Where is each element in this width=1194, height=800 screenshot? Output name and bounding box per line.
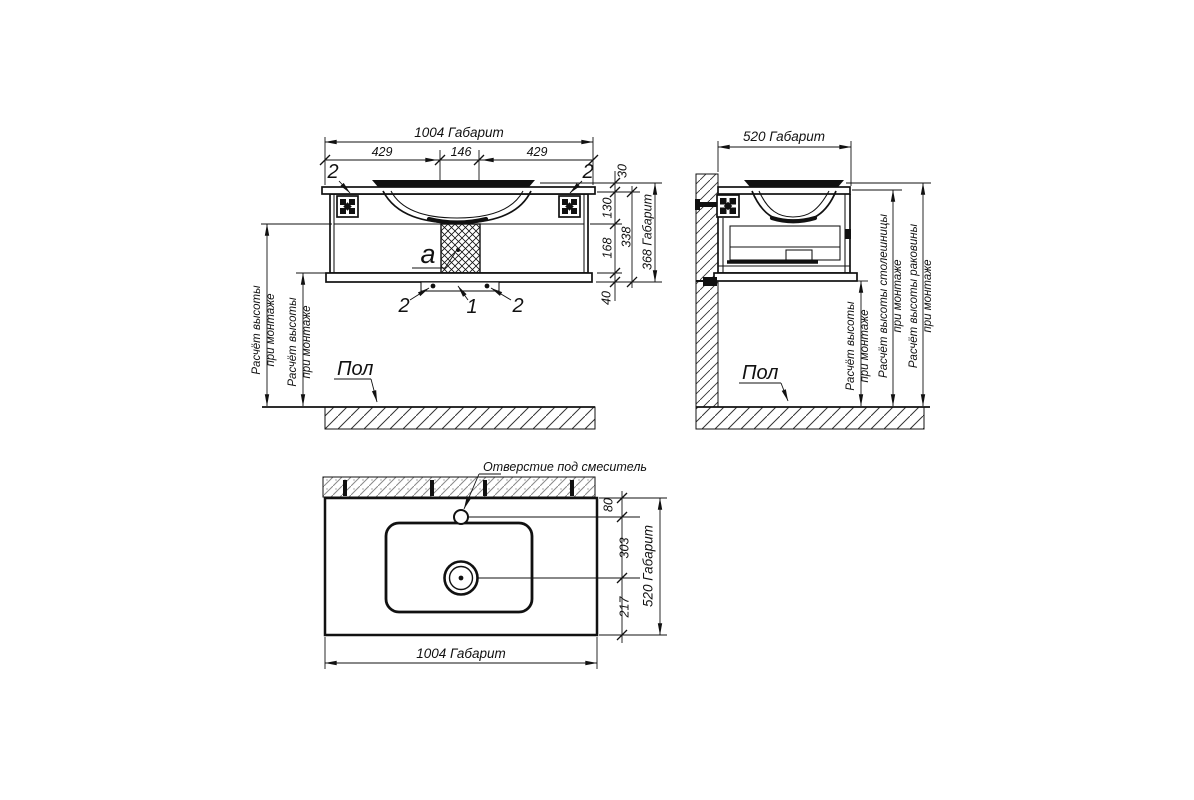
callout-foot-right: 2 xyxy=(511,295,523,317)
front-countertop xyxy=(322,187,595,194)
side-countertop xyxy=(718,187,850,194)
wall-anchor-tick xyxy=(343,480,347,496)
front-dim-width-total-label: 1004 Габарит xyxy=(414,125,504,140)
side-height-note-line1: Расчёт высоты xyxy=(845,301,857,391)
front-height-note2-line2: при монтаже xyxy=(301,305,313,378)
front-height-note1-line2: при монтаже xyxy=(265,293,277,366)
side-floor-label: Пол xyxy=(742,362,778,384)
drawer-box xyxy=(730,226,840,260)
lower-bracket xyxy=(703,277,717,286)
bolt-head xyxy=(695,199,700,210)
top-dim-303: 303 xyxy=(617,538,631,559)
side-dim-depth-total: 520 Габарит xyxy=(718,129,851,186)
top-dim-width-bottom: 1004 Габарит xyxy=(325,637,597,669)
front-dim-168: 168 xyxy=(600,238,614,259)
front-dim-left-label: 429 xyxy=(372,145,393,159)
front-dim-height-total: 368 Габарит xyxy=(640,194,654,270)
side-view: 520 Габарит xyxy=(695,129,934,429)
vanity-technical-drawing: 1004 Габарит 429 146 429 a xyxy=(0,0,1194,800)
basin-rim xyxy=(372,180,535,187)
side-basin-note-line1: Расчёт высоты раковины xyxy=(908,223,920,368)
callout-bracket-top-left: 2 xyxy=(326,161,338,183)
wall-anchor-tick xyxy=(430,480,434,496)
side-floor: Пол xyxy=(696,362,930,429)
side-bottom-panel xyxy=(696,273,857,286)
front-height-note2-line1: Расчёт высоты xyxy=(287,297,299,387)
callout-foot-left: 2 xyxy=(397,295,409,317)
front-dim-height-left: Расчёт высоты при монтаже Расчёт высоты … xyxy=(251,224,332,406)
front-floor-label: Пол xyxy=(337,358,373,380)
side-basin-note-line2: при монтаже xyxy=(922,259,934,332)
top-dim-depth-total: 520 Габарит xyxy=(641,525,656,607)
front-dim-center-label: 146 xyxy=(451,145,472,159)
basin-rim-side xyxy=(744,180,844,187)
wall-anchor-tick xyxy=(483,480,487,496)
front-mounting-bracket-right xyxy=(559,196,580,217)
front-height-note1-line1: Расчёт высоты xyxy=(251,285,263,375)
front-dim-130: 130 xyxy=(600,198,614,219)
top-wall-strip xyxy=(323,477,595,497)
front-section-label: a xyxy=(420,239,435,269)
side-height-note-line2: при монтаже xyxy=(859,309,871,382)
front-dim-right-label: 429 xyxy=(527,145,548,159)
drawing-canvas: 1004 Габарит 429 146 429 a xyxy=(0,0,1194,800)
drawer-handle xyxy=(845,229,851,239)
top-dim-80: 80 xyxy=(601,498,615,512)
side-basin xyxy=(744,180,844,222)
bolt-shaft xyxy=(700,202,718,207)
faucet-hole-label: Отверстие под смеситель xyxy=(483,460,647,474)
front-mounting-bracket-left xyxy=(337,196,358,217)
top-dim-width-label: 1004 Габарит xyxy=(416,646,506,661)
side-countertop-note-line1: Расчёт высоты столешницы xyxy=(878,213,890,377)
side-dim-depth-label: 520 Габарит xyxy=(743,129,825,144)
callout-foot-center: 1 xyxy=(466,296,477,318)
side-countertop-note-line2: при монтаже xyxy=(892,259,904,332)
front-bottom-panel xyxy=(326,273,592,291)
front-dim-338: 338 xyxy=(619,227,633,248)
front-dim-30: 30 xyxy=(615,164,629,178)
callout-bracket-top-right: 2 xyxy=(581,161,593,183)
wall-anchor-tick xyxy=(570,480,574,496)
top-dim-217: 217 xyxy=(617,596,631,619)
front-dim-40: 40 xyxy=(599,291,613,305)
top-dims-right: 80 303 217 520 Габарит xyxy=(599,491,667,643)
side-dims-right: Расчёт высоты при монтаже Расчёт высоты … xyxy=(845,183,934,406)
top-view: Отверстие под смеситель 80 303 217 520 Г… xyxy=(323,460,667,669)
front-view: 1004 Габарит 429 146 429 a xyxy=(251,125,662,429)
